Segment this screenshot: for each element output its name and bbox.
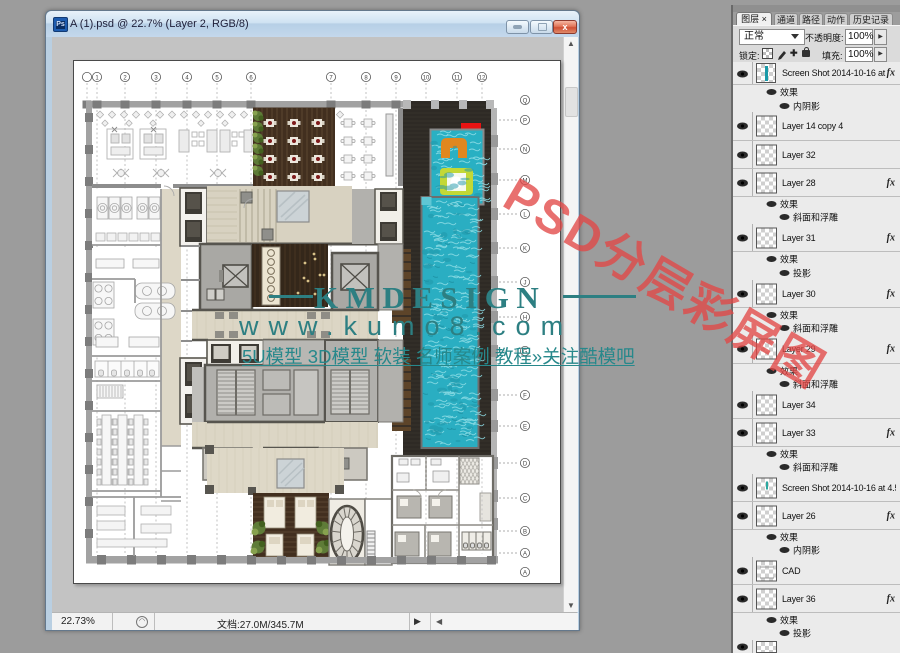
- svg-text:E: E: [523, 424, 527, 430]
- svg-text:K: K: [523, 246, 527, 252]
- svg-text:A: A: [523, 551, 527, 557]
- svg-text:D: D: [523, 461, 528, 467]
- svg-text:Q: Q: [523, 98, 528, 104]
- svg-text:N: N: [523, 147, 527, 153]
- svg-text:C: C: [523, 496, 528, 502]
- svg-text:A: A: [523, 570, 527, 576]
- svg-text:F: F: [523, 393, 527, 399]
- svg-text:12: 12: [479, 75, 486, 81]
- svg-text:10: 10: [423, 75, 430, 81]
- svg-text:11: 11: [454, 75, 461, 81]
- svg-text:B: B: [523, 529, 527, 535]
- svg-text:P: P: [523, 118, 527, 124]
